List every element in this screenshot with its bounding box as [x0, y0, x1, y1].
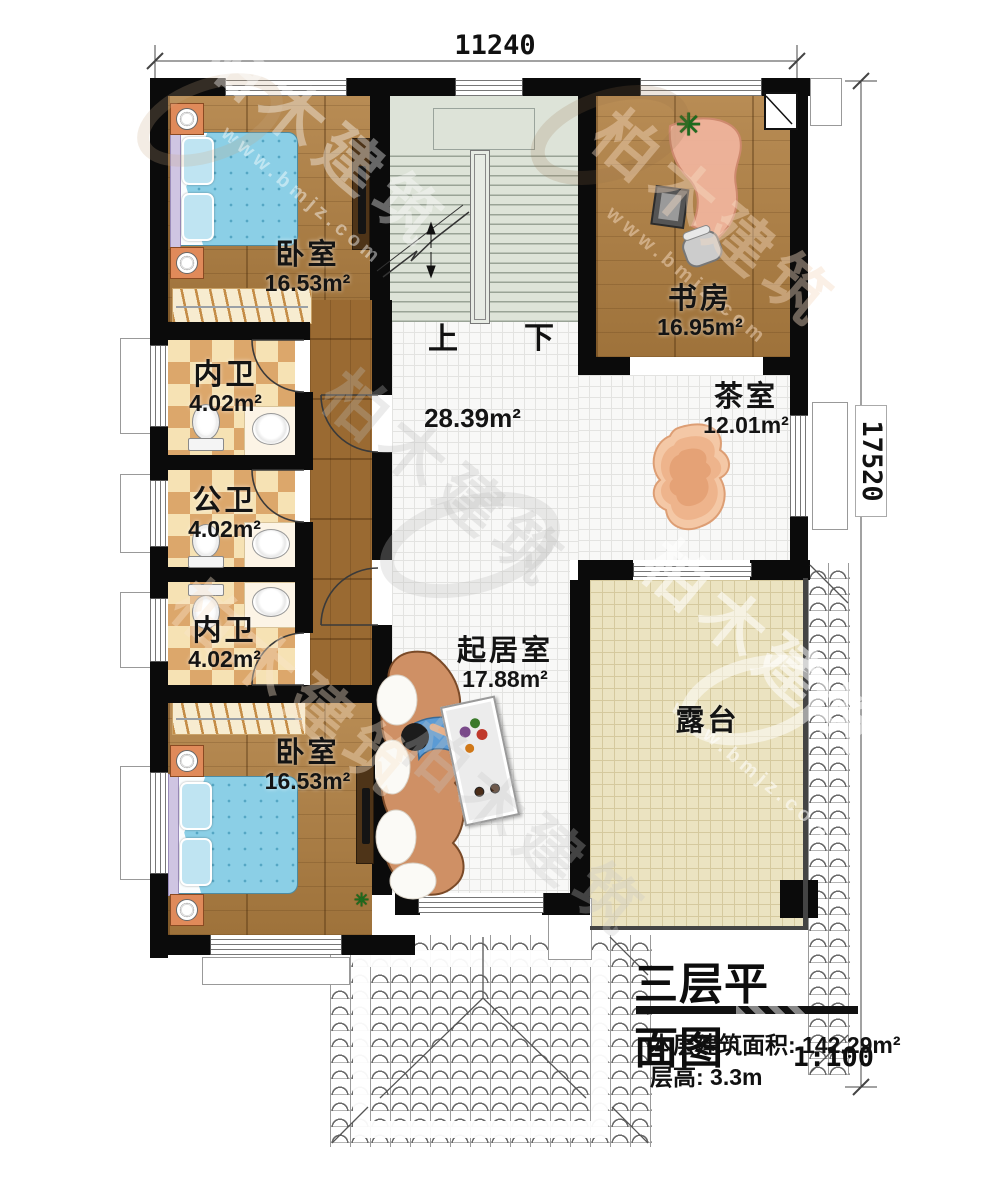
pillow-icon	[180, 838, 212, 886]
tv-icon	[362, 788, 370, 844]
window	[150, 345, 168, 427]
room-label-bath-mid: 公卫 4.02m²	[168, 486, 281, 542]
nightstand-icon	[170, 247, 204, 279]
window	[225, 78, 347, 96]
lamp-icon	[176, 252, 198, 274]
wall	[295, 392, 313, 455]
stairs-up-label: 上	[428, 314, 458, 358]
room-area: 16.53m²	[240, 769, 375, 794]
cup-icon	[489, 783, 501, 795]
toilet-tank	[188, 556, 224, 568]
room-name: 起居室	[430, 636, 580, 667]
room-area: 28.39m²	[405, 404, 540, 432]
flower-icon	[476, 728, 489, 741]
stairs-down-label: 下	[524, 313, 554, 357]
wall	[763, 357, 808, 375]
title-underline-accent	[736, 1006, 806, 1014]
room-name: 书房	[630, 284, 770, 315]
room-name: 内卫	[168, 616, 281, 647]
wall	[372, 452, 392, 560]
room-label-bath-top: 内卫 4.02m²	[168, 360, 283, 416]
desk-icon	[640, 108, 765, 278]
floor-height-line: 层高: 3.3m	[650, 1058, 762, 1092]
room-name: 卧室	[240, 738, 375, 769]
window	[640, 78, 762, 96]
window-sill	[120, 766, 152, 880]
terrace-corner-pier	[780, 880, 818, 918]
window-sill	[810, 78, 842, 126]
dimension-top: 11240	[440, 30, 550, 61]
flower-icon	[459, 725, 472, 738]
floor-area-line: 本层建筑面积: 142.29m²	[650, 1026, 901, 1060]
toilet-tank	[188, 438, 224, 451]
wardrobe-icon	[172, 701, 306, 735]
window-sill	[120, 338, 152, 434]
window	[210, 935, 342, 955]
nightstand-icon	[170, 745, 204, 777]
room-area: 16.95m²	[630, 315, 770, 340]
room-area: 17.88m²	[430, 667, 580, 692]
room-area: 12.01m²	[690, 413, 802, 438]
flower-icon	[469, 717, 481, 729]
wall	[570, 580, 590, 895]
terrace-parapet	[590, 926, 806, 930]
sink-icon	[252, 587, 290, 617]
lamp-icon	[176, 899, 198, 921]
plant-icon: ✳	[676, 108, 701, 143]
staircase-landing	[433, 108, 535, 150]
flue-icon	[764, 92, 798, 130]
wall	[542, 893, 590, 915]
monitor-icon	[651, 186, 688, 228]
pillow-icon	[180, 782, 212, 830]
room-area: 16.53m²	[240, 271, 375, 296]
flower-icon	[464, 743, 475, 754]
room-label-bedroom-bottom: 卧室 16.53m²	[240, 738, 375, 794]
pillow-icon	[182, 193, 214, 241]
lamp-icon	[176, 108, 198, 130]
window-sill	[202, 957, 350, 985]
lower-roof-ridge-band	[353, 950, 608, 1138]
staircase-rail	[470, 150, 490, 324]
wall	[578, 560, 633, 580]
wall	[578, 78, 596, 375]
window	[455, 78, 523, 96]
window	[150, 598, 168, 662]
wall	[750, 560, 810, 580]
room-name: 露台	[645, 706, 770, 737]
terrace-parapet	[803, 578, 808, 930]
sink-icon	[252, 413, 290, 445]
room-label-study: 书房 16.95m²	[630, 284, 770, 340]
plant-icon: ✳	[354, 890, 369, 911]
wall	[150, 322, 310, 340]
room-area: 4.02m²	[168, 391, 283, 416]
window-sill	[120, 474, 152, 553]
wall	[295, 522, 313, 567]
window-sill	[120, 592, 152, 668]
dimension-right: 17520	[855, 405, 887, 517]
room-name: 茶室	[690, 382, 802, 413]
title-underline-bar	[636, 1006, 858, 1014]
wall	[150, 567, 313, 582]
room-area: 4.02m²	[168, 647, 281, 672]
nightstand-icon	[170, 103, 204, 135]
floor-plan-canvas: 上 下 ✳	[0, 0, 1000, 1188]
room-label-bedroom-top: 卧室 16.53m²	[240, 240, 375, 296]
wall	[150, 455, 313, 470]
bed-headboard	[170, 130, 181, 248]
window-sill	[812, 402, 848, 530]
wall	[150, 685, 395, 703]
room-name: 卧室	[240, 240, 375, 271]
room-area: 4.02m²	[168, 517, 281, 542]
room-name: 公卫	[168, 486, 281, 517]
room-label-bath-bottom: 内卫 4.02m²	[168, 616, 281, 672]
room-label-terrace: 露台	[645, 706, 770, 737]
lamp-icon	[176, 750, 198, 772]
wall	[578, 357, 630, 375]
cup-icon	[473, 786, 485, 798]
nightstand-icon	[170, 894, 204, 926]
wall	[372, 300, 392, 395]
sliding-door	[633, 563, 752, 577]
corridor-floor	[310, 300, 372, 700]
tv-icon	[358, 166, 366, 234]
room-label-living-room: 起居室 17.88m²	[430, 636, 580, 692]
window	[150, 480, 168, 547]
wall	[295, 582, 313, 633]
room-name: 内卫	[168, 360, 283, 391]
window	[150, 772, 168, 874]
room-label-tea-room: 茶室 12.01m²	[690, 382, 802, 438]
room-label-hall: 28.39m²	[405, 404, 540, 432]
pillow-icon	[182, 137, 214, 185]
terrace-floor	[590, 580, 806, 928]
bed-headboard	[168, 774, 179, 896]
